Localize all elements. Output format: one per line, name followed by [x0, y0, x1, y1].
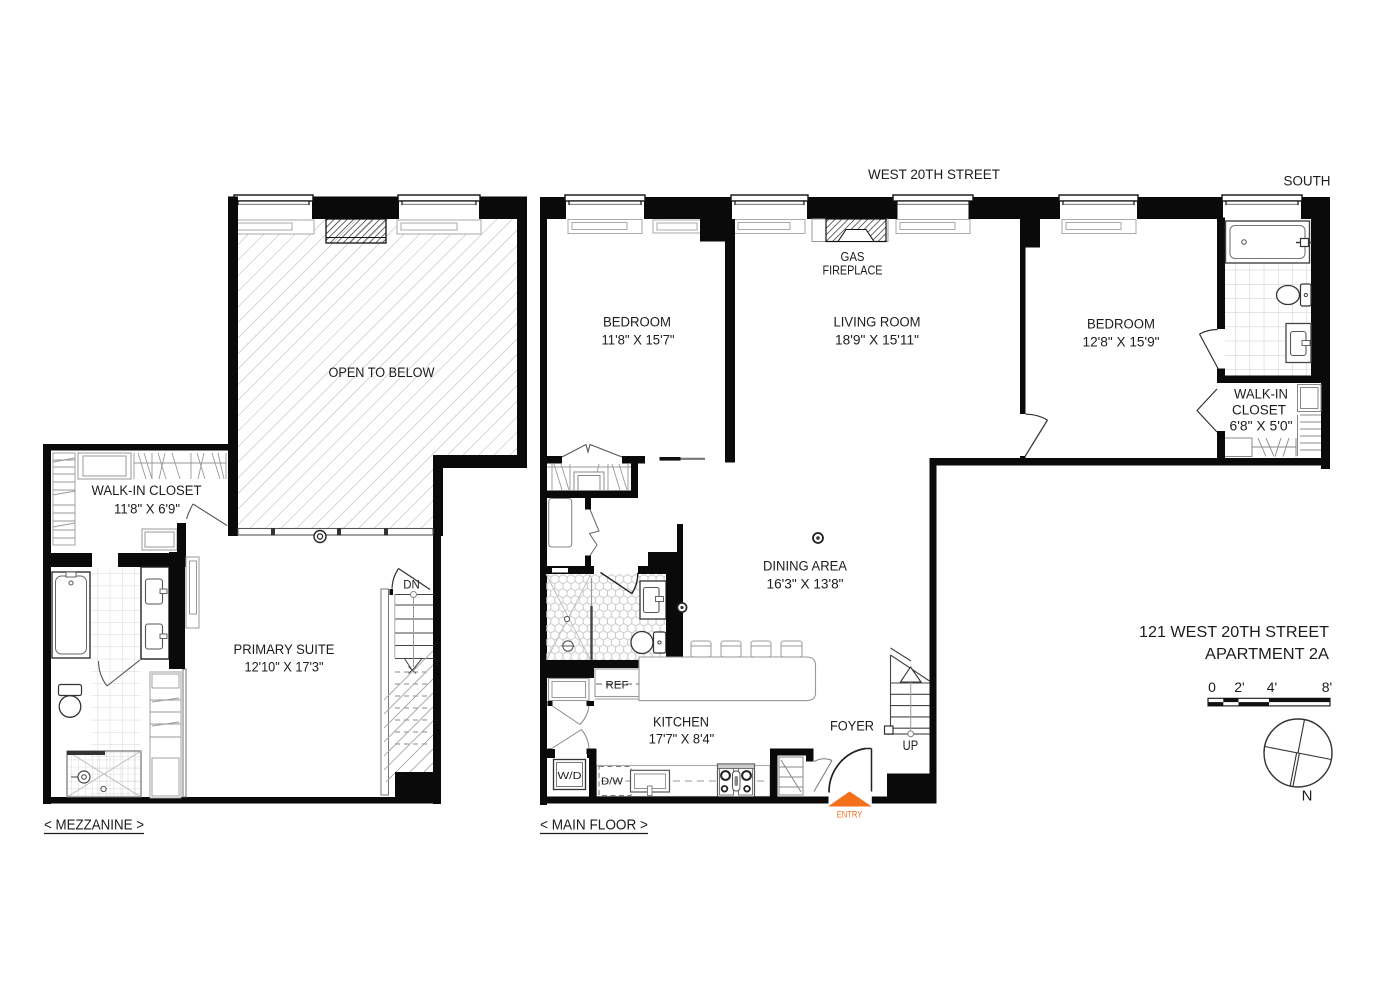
svg-text:11'8" X 15'7": 11'8" X 15'7": [602, 333, 675, 349]
svg-text:< MEZZANINE >: < MEZZANINE >: [44, 817, 144, 834]
svg-text:12'10" X 17'3": 12'10" X 17'3": [245, 660, 324, 676]
svg-text:OPEN TO BELOW: OPEN TO BELOW: [329, 365, 436, 381]
svg-text:FIREPLACE: FIREPLACE: [823, 263, 883, 278]
svg-text:FOYER: FOYER: [830, 719, 874, 735]
svg-text:BEDROOM: BEDROOM: [1087, 317, 1155, 333]
svg-text:4': 4': [1267, 679, 1277, 695]
svg-text:17'7" X 8'4": 17'7" X 8'4": [649, 732, 715, 748]
svg-text:< MAIN FLOOR >: < MAIN FLOOR >: [540, 817, 648, 834]
svg-text:UP: UP: [903, 737, 919, 753]
svg-text:121 WEST 20TH STREET: 121 WEST 20TH STREET: [1139, 624, 1329, 641]
svg-text:LIVING ROOM: LIVING ROOM: [834, 315, 921, 331]
svg-text:APARTMENT 2A: APARTMENT 2A: [1205, 646, 1330, 663]
svg-text:ENTRY: ENTRY: [837, 810, 863, 820]
svg-text:N: N: [1302, 788, 1313, 805]
svg-text:16'3" X 13'8": 16'3" X 13'8": [767, 577, 844, 593]
svg-text:WALK-IN CLOSET: WALK-IN CLOSET: [92, 483, 202, 499]
svg-text:CLOSET: CLOSET: [1232, 403, 1286, 419]
svg-text:12'8" X 15'9": 12'8" X 15'9": [1083, 335, 1160, 351]
svg-text:WALK-IN: WALK-IN: [1234, 387, 1288, 403]
svg-text:11'8" X 6'9": 11'8" X 6'9": [114, 502, 180, 518]
svg-text:18'9" X 15'11": 18'9" X 15'11": [835, 333, 919, 349]
svg-text:D/W: D/W: [601, 776, 623, 788]
svg-text:PRIMARY SUITE: PRIMARY SUITE: [234, 642, 335, 658]
svg-text:WEST 20TH STREET: WEST 20TH STREET: [868, 167, 1000, 183]
svg-text:SOUTH: SOUTH: [1284, 174, 1331, 190]
svg-text:W/D: W/D: [558, 771, 582, 782]
svg-text:0: 0: [1208, 679, 1216, 695]
svg-text:DN: DN: [403, 579, 420, 592]
svg-text:6'8" X 5'0": 6'8" X 5'0": [1230, 419, 1293, 435]
svg-text:DINING AREA: DINING AREA: [763, 559, 847, 575]
svg-text:REF: REF: [606, 680, 629, 692]
svg-text:KITCHEN: KITCHEN: [653, 715, 709, 731]
svg-text:8': 8': [1322, 679, 1332, 695]
svg-text:BEDROOM: BEDROOM: [603, 315, 671, 331]
svg-text:2': 2': [1234, 679, 1244, 695]
